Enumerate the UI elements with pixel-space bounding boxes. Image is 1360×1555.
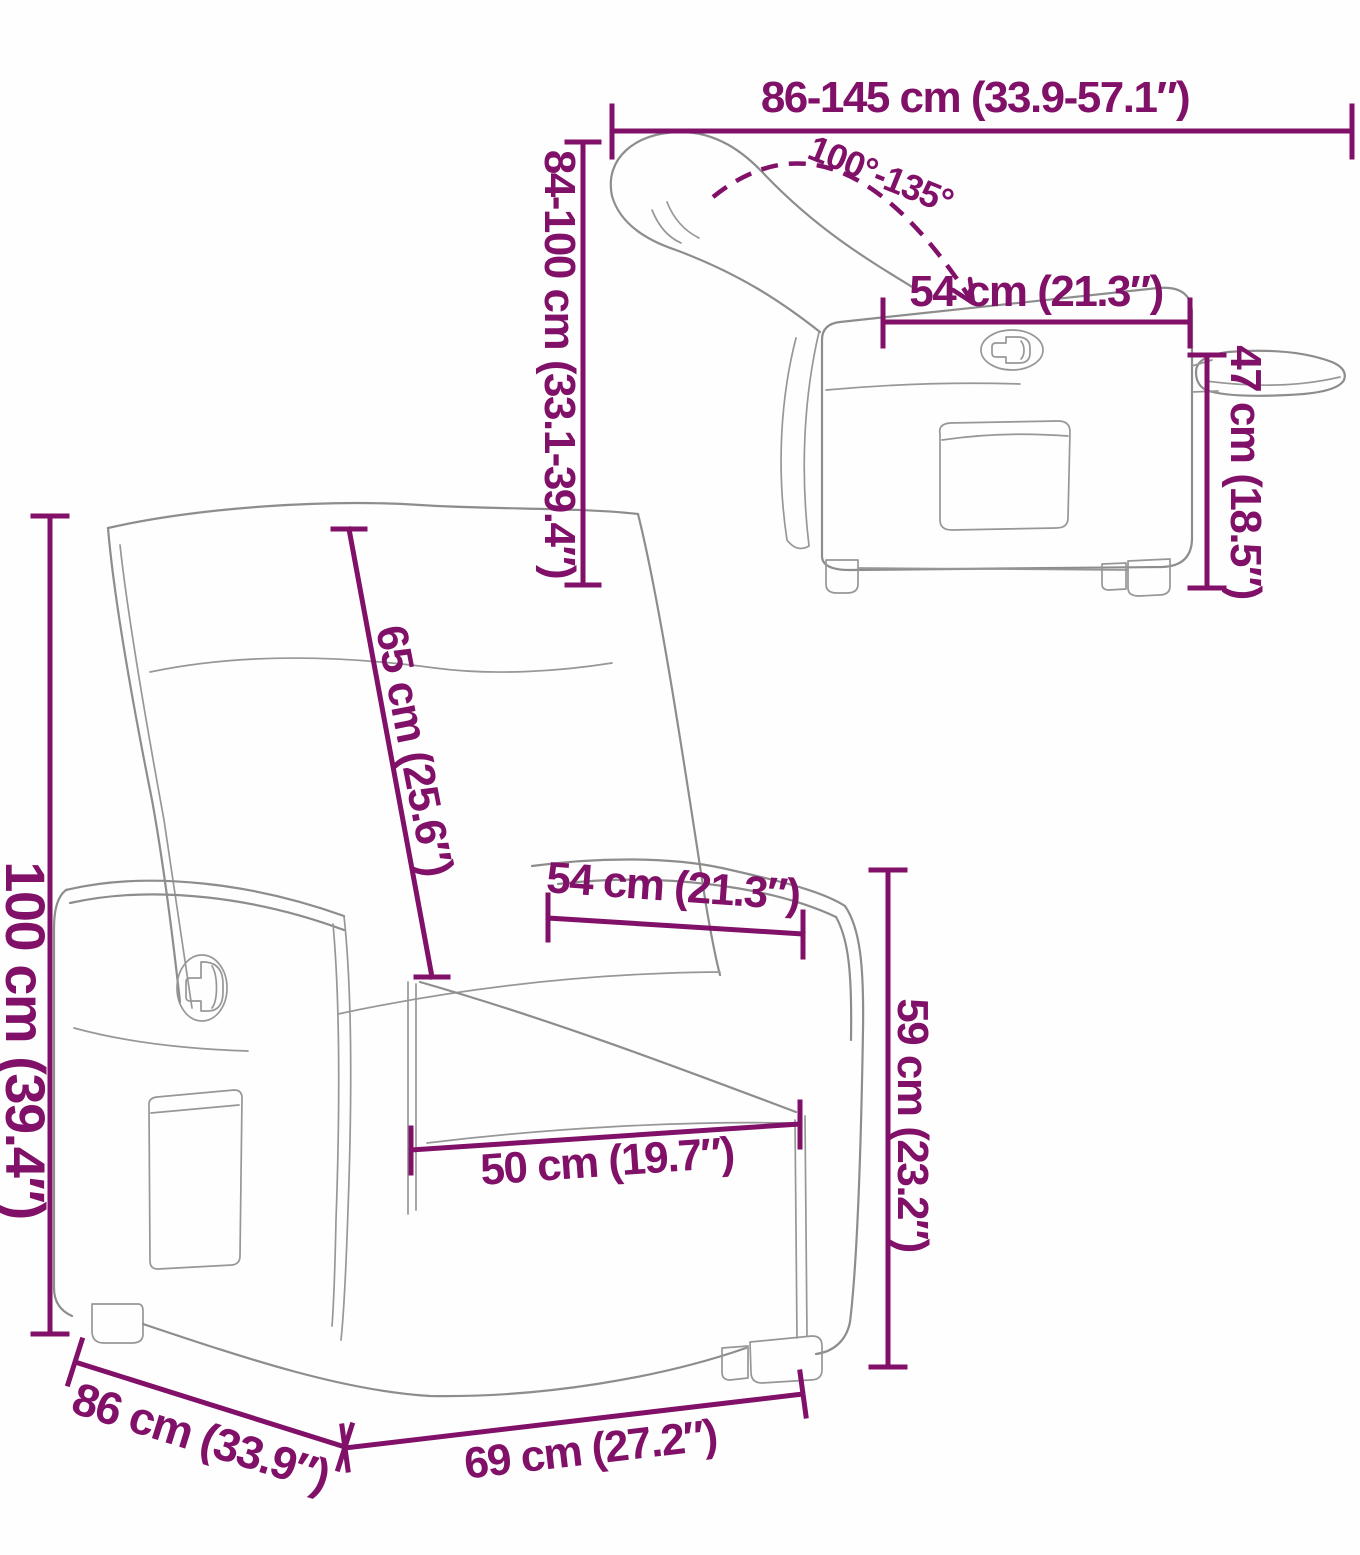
- dim-backrest-height: 84-100 cm (33.1-39.4″): [535, 142, 599, 585]
- dim-extended-length-label: 86-145 cm (33.9-57.1″): [761, 73, 1189, 122]
- front-backrest-left-piping: [120, 545, 192, 1008]
- side-seam-line: [826, 383, 1020, 390]
- dim-seat-depth-label: 54 cm (21.3″): [909, 267, 1163, 316]
- dim-seat-height: 47 cm (18.5″): [1190, 345, 1270, 599]
- dim-armrest-height: 59 cm (23.2″): [871, 870, 937, 1367]
- dim-total-depth-label: 86 cm (33.9″): [66, 1372, 335, 1502]
- dim-total-width: 69 cm (27.2″): [342, 1372, 806, 1489]
- side-backrest-side-strip: [781, 332, 819, 548]
- dim-seat-width-front-label: 50 cm (19.7″): [479, 1128, 735, 1195]
- front-seat-left-edges: [408, 982, 416, 1214]
- front-backrest-left-edge: [108, 528, 180, 1002]
- front-handle-detail: [212, 966, 217, 1008]
- dim-extended-length: 86-145 cm (33.9-57.1″): [612, 73, 1352, 157]
- front-left-arm-top: [66, 881, 344, 930]
- front-arm-seam: [74, 1028, 248, 1051]
- side-handle-detail: [1021, 341, 1024, 359]
- front-left-arm-inner-edges: [332, 916, 351, 1340]
- side-foot-right: [1128, 559, 1170, 596]
- dim-backrest-length: 65 cm (25.6″): [333, 529, 462, 977]
- side-pocket-flap: [942, 434, 1068, 440]
- dim-seat-width-rear-label: 54 cm (21.3″): [545, 853, 801, 920]
- side-recline-handle-icon: [981, 330, 1043, 370]
- dim-seat-height-line: [1190, 355, 1224, 588]
- front-foot-right: [750, 1336, 822, 1383]
- dim-seat-width-front: 50 cm (19.7″): [411, 1102, 800, 1195]
- front-right-arm-outer-edge: [816, 906, 863, 1354]
- side-backrest-inner-edge: [612, 196, 820, 332]
- dim-total-height-label: 100 cm (39.4″): [0, 861, 57, 1219]
- dim-backrest-length-label: 65 cm (25.6″): [366, 621, 462, 879]
- front-view-line-art: [54, 503, 863, 1396]
- dim-backrest-height-label: 84-100 cm (33.1-39.4″): [535, 150, 584, 578]
- front-pocket-flap: [151, 1105, 239, 1113]
- front-foot-left: [92, 1304, 143, 1343]
- dim-seat-width-rear: 54 cm (21.3″): [545, 853, 803, 957]
- dim-armrest-height-label: 59 cm (23.2″): [888, 998, 937, 1252]
- dim-seat-depth: 54 cm (21.3″): [883, 267, 1190, 346]
- dim-recline-angle-label: 100°-135°: [803, 127, 959, 222]
- side-foot-left: [826, 560, 858, 593]
- dim-seat-height-label: 47 cm (18.5″): [1221, 345, 1270, 599]
- side-headrest-crease: [652, 202, 699, 243]
- front-pocket: [149, 1090, 242, 1269]
- front-seat-crease: [338, 972, 720, 1014]
- recliner-dimension-diagram: 86-145 cm (33.9-57.1″) 100°-135° 84-100 …: [0, 0, 1360, 1555]
- dim-total-width-label: 69 cm (27.2″): [462, 1410, 720, 1488]
- dim-total-height: 100 cm (39.4″): [0, 516, 67, 1334]
- front-bottom-edge: [143, 1324, 746, 1396]
- dim-total-depth: 86 cm (33.9″): [66, 1340, 352, 1502]
- front-seat-cushion-front: [420, 982, 796, 1112]
- diagram-canvas: 86-145 cm (33.9-57.1″) 100°-135° 84-100 …: [0, 0, 1360, 1555]
